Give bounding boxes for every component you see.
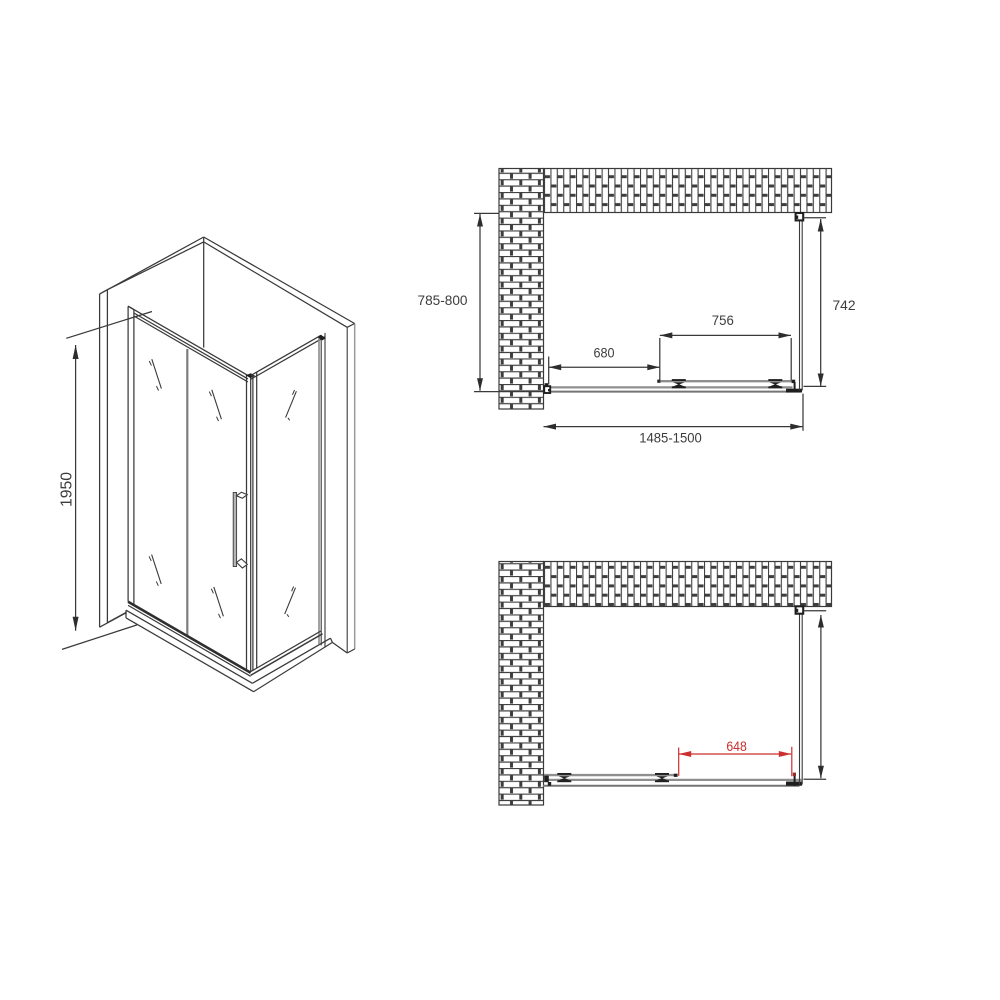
svg-text:742: 742 <box>833 298 856 314</box>
svg-text:756: 756 <box>712 313 734 329</box>
svg-text:680: 680 <box>594 346 615 362</box>
svg-text:1950: 1950 <box>58 472 75 507</box>
svg-text:648: 648 <box>726 739 747 755</box>
svg-text:785-800: 785-800 <box>418 293 468 309</box>
svg-text:1485-1500: 1485-1500 <box>639 430 702 446</box>
